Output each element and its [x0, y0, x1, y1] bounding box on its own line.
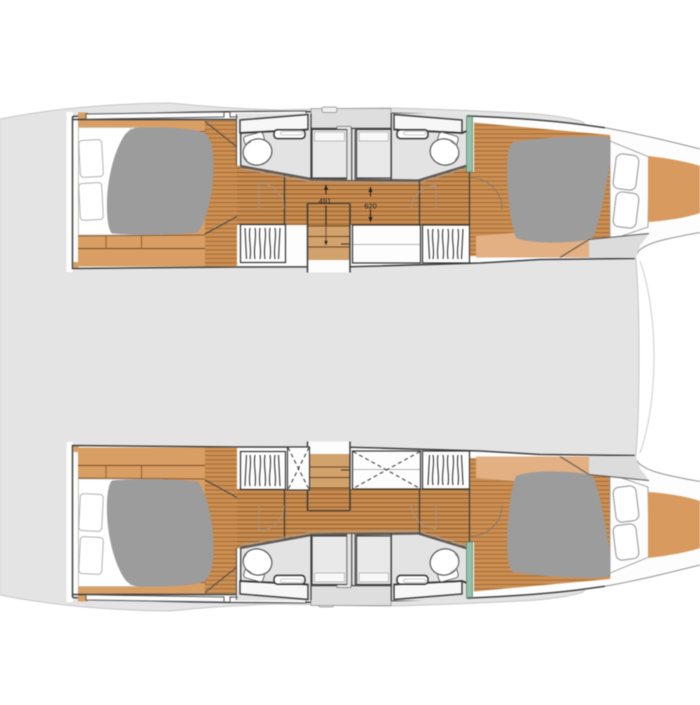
svg-text:491: 491: [319, 197, 332, 206]
svg-text:620: 620: [364, 202, 377, 211]
